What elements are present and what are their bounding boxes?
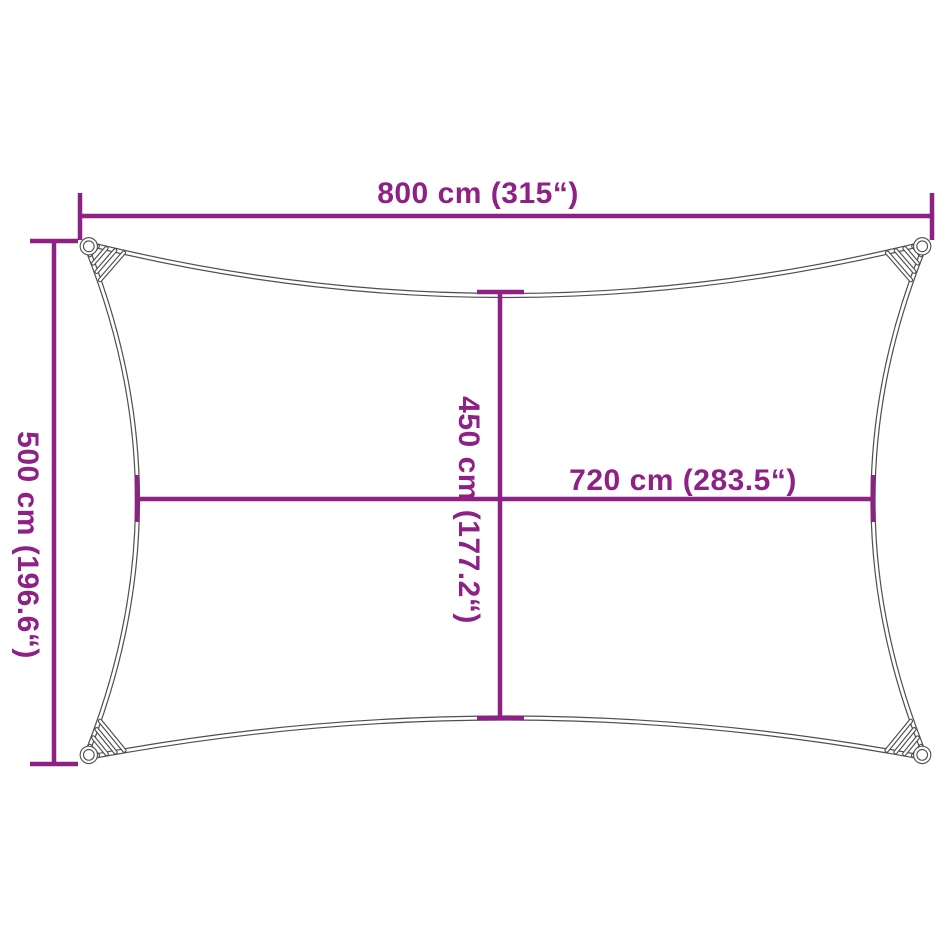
dimension-label-outer-width: 800 cm (315“)	[377, 179, 579, 209]
dimension-label-outer-height: 500 cm (196.6“)	[12, 431, 42, 659]
dimension-label-inner-height: 450 cm (177.2“)	[453, 396, 483, 624]
dimension-label-inner-width: 720 cm (283.5“)	[569, 466, 797, 496]
shade-sail-dimension-diagram: 800 cm (315“) 500 cm (196.6“) 450 cm (17…	[0, 0, 947, 947]
